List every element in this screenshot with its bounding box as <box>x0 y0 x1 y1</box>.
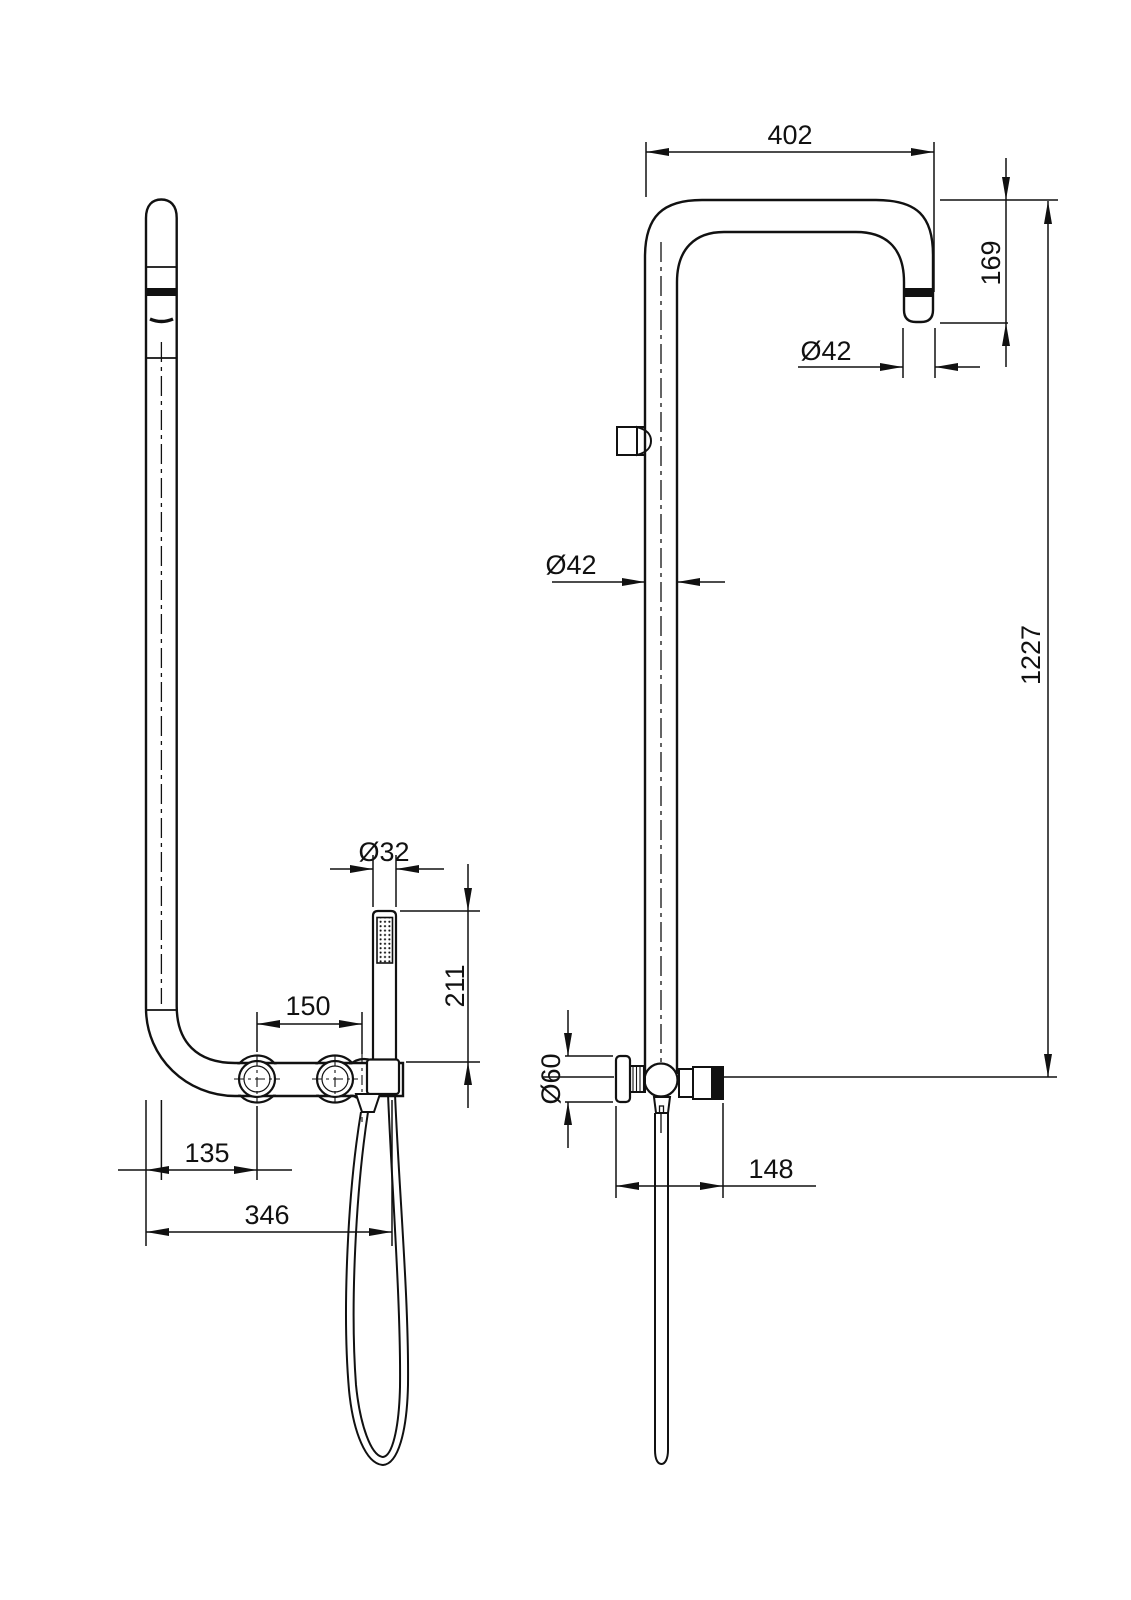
shower-hose <box>655 1113 668 1464</box>
holder-bracket <box>367 1060 399 1095</box>
dim-handle-spacing: 150 <box>257 991 362 1054</box>
dim-label: 150 <box>285 991 330 1021</box>
dim-label: Ø42 <box>545 550 596 580</box>
front-view <box>616 200 933 1464</box>
spout-black-band <box>904 288 933 297</box>
knurled-stem <box>630 1066 645 1092</box>
dim-label: 1227 <box>1016 625 1046 685</box>
valve-outlet-black <box>712 1067 723 1099</box>
dim-handshower-length: 211 <box>400 864 480 1108</box>
dim-wall-to-holder: 346 <box>146 1100 392 1246</box>
dim-label: Ø32 <box>358 837 409 867</box>
dim-spout-diameter: Ø42 <box>798 328 980 378</box>
spray-face <box>377 918 393 964</box>
dim-label: 346 <box>244 1200 289 1230</box>
technical-drawing: 402 169 Ø42 Ø42 1227 <box>0 0 1131 1600</box>
dim-arm-width: 402 <box>646 120 934 292</box>
side-view <box>146 200 408 1466</box>
dim-label: 135 <box>184 1138 229 1168</box>
dim-label: 211 <box>440 964 470 1007</box>
valve-body <box>693 1067 712 1099</box>
hose-nipple <box>654 1097 670 1113</box>
valve-connector <box>679 1069 693 1097</box>
spout-black-band <box>146 288 177 296</box>
hose-loop-inner <box>354 1094 400 1457</box>
dim-total-height: 1227 <box>723 201 1057 1077</box>
dim-handshower-diameter: Ø32 <box>330 837 444 907</box>
dim-label: 169 <box>976 240 1006 285</box>
dim-label: 402 <box>767 120 812 150</box>
ball-joint <box>645 1064 678 1097</box>
dim-knob-diameter: Ø60 <box>536 1010 614 1148</box>
dim-label: Ø42 <box>800 336 851 366</box>
dim-valve-depth: 148 <box>616 1103 816 1198</box>
hose-cone <box>356 1094 380 1112</box>
dim-arm-drop: 169 <box>940 158 1058 367</box>
shower-column-and-arm <box>645 200 933 1074</box>
riser-tube <box>146 200 403 1097</box>
dim-label: 148 <box>748 1154 793 1184</box>
dim-riser-diameter: Ø42 <box>545 550 725 582</box>
drawing-sheet: 402 169 Ø42 Ø42 1227 <box>0 0 1131 1600</box>
valve-knob-disc <box>616 1056 630 1102</box>
dim-label: Ø60 <box>536 1053 566 1104</box>
